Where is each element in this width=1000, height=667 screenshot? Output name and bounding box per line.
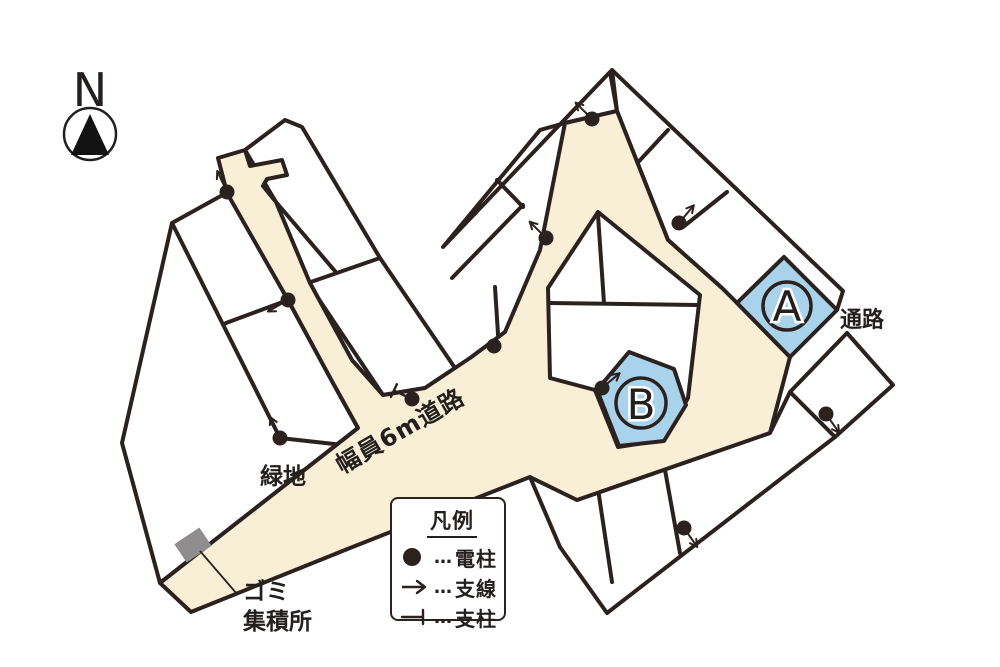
legend-ellipsis: … [434, 547, 452, 568]
utility-pole-dot-icon [487, 339, 502, 354]
lot-divider [549, 303, 697, 305]
north-compass: N [64, 63, 116, 160]
legend-label-strut: 支柱 [455, 603, 497, 632]
legend-ellipsis: … [434, 607, 452, 628]
site-plan: A B 通路 緑地 幅員6m道路 ゴミ 集積所 N 凡例 [0, 0, 1000, 667]
green-space-label: 緑地 [260, 463, 306, 490]
trash-label-line2: 集積所 [242, 608, 312, 635]
utility-pole-dot-icon [281, 293, 296, 308]
lot-divider [452, 205, 523, 278]
support-strut-symbol-icon [400, 606, 434, 628]
legend-box: 凡例 … 電柱 … 支線 [390, 497, 506, 621]
utility-pole-dot-icon [273, 431, 288, 446]
utility-pole-dot-icon [819, 407, 834, 422]
utility-pole-dot-icon [677, 521, 692, 536]
legend-row-guy-wire: … 支線 [400, 572, 504, 602]
utility-pole-symbol-icon [400, 546, 434, 568]
legend-row-strut: … 支柱 [400, 602, 504, 632]
trash-label-line1: ゴミ [243, 578, 289, 605]
legend-label-pole: 電柱 [455, 543, 497, 572]
legend-ellipsis: … [434, 577, 452, 598]
compass-needle-icon [71, 114, 109, 155]
legend-title-row: 凡例 [400, 505, 504, 538]
legend-row-pole: … 電柱 [400, 542, 504, 572]
passage-label: 通路 [840, 307, 885, 333]
lot-b-letter: B [627, 380, 656, 429]
legend-title: 凡例 [427, 505, 477, 538]
lot-divider [497, 180, 523, 207]
utility-pole-marker [487, 339, 502, 354]
utility-pole-dot-icon [220, 185, 235, 200]
legend-label-guy-wire: 支線 [455, 573, 497, 602]
lot-a-letter: A [773, 282, 802, 331]
guy-wire-symbol-icon [400, 576, 434, 598]
